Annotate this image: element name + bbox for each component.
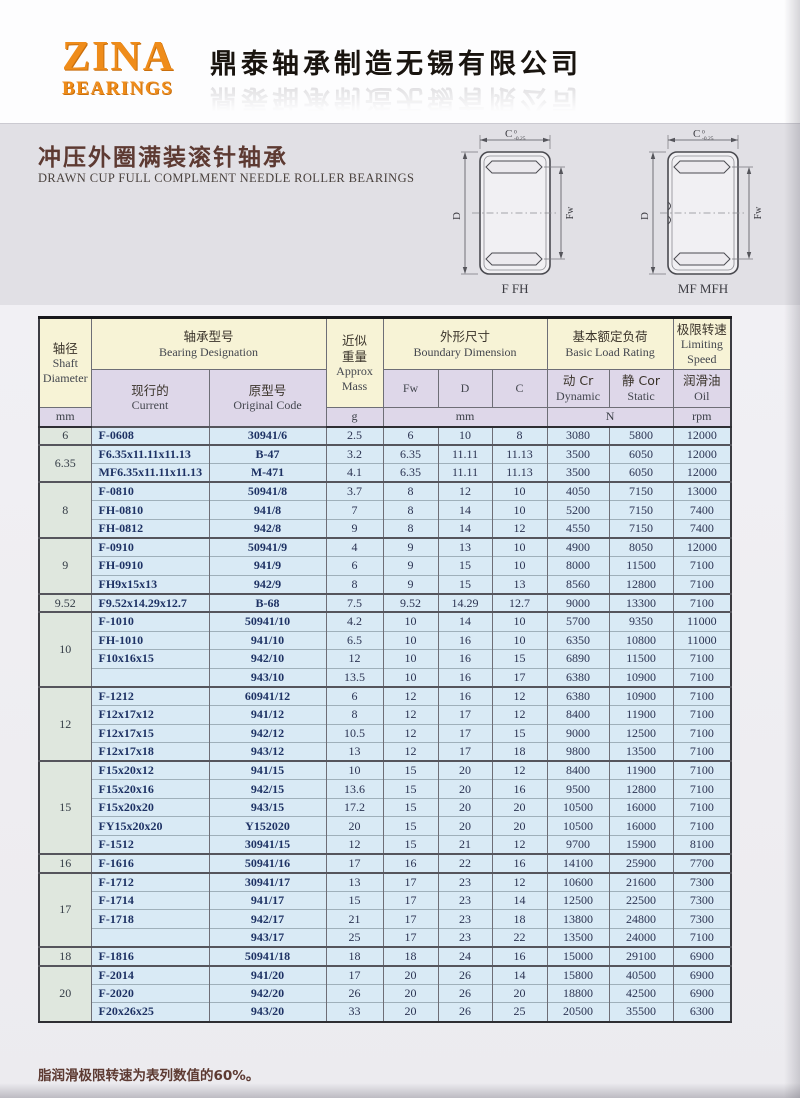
col-header-dynamic: 动 Cr Dynamic xyxy=(547,370,609,408)
table-row: FH-0812942/8981412455071507400 xyxy=(39,519,731,538)
table-row: 15F15x20x12941/15101520128400119007100 xyxy=(39,761,731,780)
table-cell: 15 xyxy=(383,780,438,799)
table-cell: 23 xyxy=(438,929,492,948)
diagram-caption: MF MFH xyxy=(678,281,728,296)
table-cell: 33 xyxy=(326,1003,383,1022)
table-cell: 10.5 xyxy=(326,724,383,743)
shaft-diameter-cell: 6.35 xyxy=(39,445,91,482)
table-cell: 942/9 xyxy=(209,575,326,594)
table-cell: 17 xyxy=(383,910,438,929)
table-cell: 942/20 xyxy=(209,984,326,1003)
table-cell: FY15x20x20 xyxy=(91,817,209,836)
table-cell: 8000 xyxy=(547,557,609,576)
table-cell: 10 xyxy=(383,668,438,687)
table-row: F20x26x25943/203320262520500355006300 xyxy=(39,1003,731,1022)
shaft-diameter-cell: 9 xyxy=(39,538,91,594)
table-cell: 6 xyxy=(326,687,383,706)
shaft-diameter-cell: 12 xyxy=(39,687,91,761)
table-cell: 8 xyxy=(492,427,547,446)
table-wrap: 轴径 Shaft Diameter 轴承型号 Bearing Designati… xyxy=(38,316,732,1023)
dim-label-c-sub: -0.25 xyxy=(702,136,714,142)
dim-label-c: C xyxy=(505,128,512,140)
table-cell: 13800 xyxy=(547,910,609,929)
table-cell: 942/10 xyxy=(209,650,326,669)
table-cell: 11.11 xyxy=(438,464,492,483)
table-cell: 50941/16 xyxy=(209,854,326,873)
table-cell: 7100 xyxy=(673,687,731,706)
table-cell: 7100 xyxy=(673,594,731,613)
logo-zina-text: ZINA xyxy=(62,36,175,78)
dim-label-fw: Fw xyxy=(753,206,764,220)
table-cell: 20 xyxy=(383,966,438,985)
table-cell: 15000 xyxy=(547,947,609,966)
table-cell: F20x26x25 xyxy=(91,1003,209,1022)
header-area: ZINA BEARINGS 鼎泰轴承制造无锡有限公司 鼎泰轴承制造无锡有限公司 xyxy=(0,0,800,123)
table-cell: 12 xyxy=(383,705,438,724)
table-cell: F15x20x12 xyxy=(91,761,209,780)
table-cell: 14 xyxy=(492,966,547,985)
table-cell: 11500 xyxy=(609,557,673,576)
table-cell: 10 xyxy=(438,427,492,446)
table-cell: F-0810 xyxy=(91,482,209,501)
table-cell: 13.5 xyxy=(326,668,383,687)
dim-label-d: D xyxy=(452,212,463,220)
table-cell: 941/20 xyxy=(209,966,326,985)
table-row: F15x20x16942/1513.61520169500128007100 xyxy=(39,780,731,799)
table-cell: 14 xyxy=(438,519,492,538)
table-cell: 18 xyxy=(492,910,547,929)
table-cell: 18800 xyxy=(547,984,609,1003)
table-cell: 10 xyxy=(383,612,438,631)
table-cell: 11900 xyxy=(609,761,673,780)
table-cell: 12 xyxy=(492,705,547,724)
table-cell: 20500 xyxy=(547,1003,609,1022)
table-cell: 50941/9 xyxy=(209,538,326,557)
table-cell: 13 xyxy=(326,743,383,762)
table-row: F12x17x12941/1281217128400119007100 xyxy=(39,705,731,724)
table-cell: 12 xyxy=(492,836,547,855)
table-cell: 14 xyxy=(438,612,492,631)
table-cell: F6.35x11.11x11.13 xyxy=(91,445,209,464)
table-cell: B-68 xyxy=(209,594,326,613)
table-cell: 13300 xyxy=(609,594,673,613)
table-cell: 3500 xyxy=(547,464,609,483)
table-cell: 6380 xyxy=(547,668,609,687)
table-cell: 40500 xyxy=(609,966,673,985)
table-cell: 4050 xyxy=(547,482,609,501)
table-cell: 10 xyxy=(383,650,438,669)
table-cell xyxy=(91,668,209,687)
table-row: F-1714941/171517231412500225007300 xyxy=(39,891,731,910)
table-cell: 10800 xyxy=(609,631,673,650)
col-header-oil: 润滑油 Oil xyxy=(673,370,731,408)
table-cell: 15 xyxy=(438,575,492,594)
table-cell: 26 xyxy=(326,984,383,1003)
dim-label-c-sup: 0 xyxy=(702,130,705,136)
table-cell: 941/10 xyxy=(209,631,326,650)
footer-note: 脂润滑极限转速为表列数值的60%。 xyxy=(38,1064,259,1084)
page-title-zh: 冲压外圈满装滚针轴承 xyxy=(38,138,288,172)
table-cell: 15900 xyxy=(609,836,673,855)
table-cell: 17 xyxy=(326,854,383,873)
catalog-page: ZINA BEARINGS 鼎泰轴承制造无锡有限公司 鼎泰轴承制造无锡有限公司 … xyxy=(0,0,800,1098)
table-row: F15x20x20943/1517.215202010500160007100 xyxy=(39,798,731,817)
table-head: 轴径 Shaft Diameter 轴承型号 Bearing Designati… xyxy=(39,318,731,427)
table-cell: 20 xyxy=(492,817,547,836)
table-cell: 13500 xyxy=(547,929,609,948)
table-cell: 11.13 xyxy=(492,464,547,483)
table-cell: 9 xyxy=(383,538,438,557)
col-header-approx-mass: 近似 重量 Approx Mass xyxy=(326,318,383,408)
table-cell: 12800 xyxy=(609,575,673,594)
table-cell: 17 xyxy=(438,705,492,724)
unit-shaft: mm xyxy=(39,408,91,427)
table-cell: 18 xyxy=(383,947,438,966)
table-cell: 941/12 xyxy=(209,705,326,724)
table-cell: 17 xyxy=(326,966,383,985)
table-row: FH-1010941/106.510161063501080011000 xyxy=(39,631,731,650)
table-cell: 8 xyxy=(383,501,438,520)
table-cell: 10 xyxy=(492,538,547,557)
table-cell: 10 xyxy=(492,612,547,631)
table-cell: 17 xyxy=(492,668,547,687)
table-cell: 8 xyxy=(326,705,383,724)
table-cell: 17 xyxy=(383,891,438,910)
shaft-diameter-cell: 17 xyxy=(39,873,91,947)
table-cell: 7100 xyxy=(673,817,731,836)
bearing-diagram-f-fh: C 0 -0.25 D Fw F FH xyxy=(452,128,610,304)
table-cell: 20 xyxy=(438,817,492,836)
table-cell: 7300 xyxy=(673,891,731,910)
table-cell: 20 xyxy=(438,761,492,780)
shaft-diameter-cell: 8 xyxy=(39,482,91,538)
table-cell: 16 xyxy=(438,668,492,687)
table-cell: 943/12 xyxy=(209,743,326,762)
table-cell: 21 xyxy=(438,836,492,855)
table-cell: 42500 xyxy=(609,984,673,1003)
table-cell: 7100 xyxy=(673,575,731,594)
table-cell: 20 xyxy=(438,780,492,799)
table-cell: 16 xyxy=(438,687,492,706)
table-cell: F12x17x18 xyxy=(91,743,209,762)
table-cell: 3080 xyxy=(547,427,609,446)
table-row: FY15x20x20Y1520202015202010500160007100 xyxy=(39,817,731,836)
company-name-block: 鼎泰轴承制造无锡有限公司 鼎泰轴承制造无锡有限公司 xyxy=(210,42,630,121)
table-cell: 20 xyxy=(492,798,547,817)
table-cell: 4.2 xyxy=(326,612,383,631)
table-cell: 9 xyxy=(326,519,383,538)
needle-roller-top xyxy=(674,161,730,173)
table-cell: 11500 xyxy=(609,650,673,669)
table-cell: F-1616 xyxy=(91,854,209,873)
table-cell: 7.5 xyxy=(326,594,383,613)
table-cell: 13500 xyxy=(609,743,673,762)
table-cell: 13 xyxy=(492,575,547,594)
table-cell: MF6.35x11.11x11.13 xyxy=(91,464,209,483)
table-cell: 9 xyxy=(383,557,438,576)
table-cell: 8400 xyxy=(547,705,609,724)
table-cell: 60941/12 xyxy=(209,687,326,706)
table-cell: 6900 xyxy=(673,947,731,966)
table-cell: 10500 xyxy=(547,798,609,817)
needle-roller-bottom xyxy=(674,253,730,265)
header-row-1: 轴径 Shaft Diameter 轴承型号 Bearing Designati… xyxy=(39,318,731,370)
table-cell: 12 xyxy=(492,519,547,538)
zina-logo: ZINA BEARINGS xyxy=(62,36,175,101)
shaft-diameter-cell: 20 xyxy=(39,966,91,1022)
table-cell: 3.2 xyxy=(326,445,383,464)
shaft-diameter-cell: 6 xyxy=(39,427,91,446)
table-cell: 6890 xyxy=(547,650,609,669)
table-cell: 4.1 xyxy=(326,464,383,483)
table-cell: 20 xyxy=(438,798,492,817)
table-cell: 17 xyxy=(383,873,438,892)
table-cell: FH-0910 xyxy=(91,557,209,576)
table-cell: F9.52x14.29x12.7 xyxy=(91,594,209,613)
table-cell: 16000 xyxy=(609,817,673,836)
table-cell: 5200 xyxy=(547,501,609,520)
col-header-limiting-speed: 极限转速 Limiting Speed xyxy=(673,318,731,370)
table-cell: 16 xyxy=(438,650,492,669)
table-cell: 12 xyxy=(383,743,438,762)
table-cell: 11.11 xyxy=(438,445,492,464)
table-cell: 8100 xyxy=(673,836,731,855)
col-header-basic-load-rating: 基本额定负荷 Basic Load Rating xyxy=(547,318,673,370)
table-cell: F-0910 xyxy=(91,538,209,557)
col-header-current: 现行的 Current xyxy=(91,370,209,427)
table-row: 10F-101050941/104.21014105700935011000 xyxy=(39,612,731,631)
table-row: FH-0910941/96915108000115007100 xyxy=(39,557,731,576)
table-cell: 10 xyxy=(492,482,547,501)
table-cell: 14100 xyxy=(547,854,609,873)
table-cell: 15 xyxy=(326,891,383,910)
shaft-diameter-cell: 16 xyxy=(39,854,91,873)
table-row: 18F-181650941/181818241615000291006900 xyxy=(39,947,731,966)
table-cell: B-47 xyxy=(209,445,326,464)
dim-label-c: C xyxy=(693,128,700,140)
table-cell: 4550 xyxy=(547,519,609,538)
page-title-en: DRAWN CUP FULL COMPLMENT NEEDLE ROLLER B… xyxy=(38,171,414,186)
table-cell: 16000 xyxy=(609,798,673,817)
table-body: 6F-060830941/62.5610830805800120006.35F6… xyxy=(39,427,731,1022)
table-cell: 7100 xyxy=(673,668,731,687)
table-cell: 6050 xyxy=(609,464,673,483)
table-cell: 7300 xyxy=(673,910,731,929)
table-row: F10x16x15942/10121016156890115007100 xyxy=(39,650,731,669)
table-row: 6F-060830941/62.561083080580012000 xyxy=(39,427,731,446)
table-cell: 21600 xyxy=(609,873,673,892)
table-cell: 8 xyxy=(326,575,383,594)
table-cell: 23 xyxy=(438,873,492,892)
table-cell: FH-0810 xyxy=(91,501,209,520)
table-row: MF6.35x11.11x11.13M-4714.16.3511.1111.13… xyxy=(39,464,731,483)
table-cell: 941/15 xyxy=(209,761,326,780)
table-cell: 9800 xyxy=(547,743,609,762)
table-cell: 13 xyxy=(326,873,383,892)
table-cell: 4900 xyxy=(547,538,609,557)
table-cell: 18 xyxy=(326,947,383,966)
table-cell: 10 xyxy=(492,501,547,520)
table-cell: 11000 xyxy=(673,612,731,631)
header-row-2: 现行的 Current 原型号 Original Code Fw D C xyxy=(39,370,731,408)
table-cell: 50941/8 xyxy=(209,482,326,501)
table-cell: 12 xyxy=(492,873,547,892)
table-cell: 7100 xyxy=(673,650,731,669)
table-row: 6.35F6.35x11.11x11.13B-473.26.3511.1111.… xyxy=(39,445,731,464)
table-cell: 10 xyxy=(326,761,383,780)
table-cell: 9.52 xyxy=(383,594,438,613)
table-cell: 13 xyxy=(438,538,492,557)
table-cell: 16 xyxy=(492,947,547,966)
table-cell: F15x20x20 xyxy=(91,798,209,817)
table-cell: 6900 xyxy=(673,966,731,985)
table-cell: 9000 xyxy=(547,724,609,743)
table-cell: 13.6 xyxy=(326,780,383,799)
table-cell: 16 xyxy=(492,854,547,873)
table-cell: 14 xyxy=(438,501,492,520)
shaft-diameter-cell: 15 xyxy=(39,761,91,854)
table-cell: 2.5 xyxy=(326,427,383,446)
table-cell: 15800 xyxy=(547,966,609,985)
table-cell: 6050 xyxy=(609,445,673,464)
table-cell: 7100 xyxy=(673,724,731,743)
table-cell: 8 xyxy=(383,482,438,501)
table-cell: 3500 xyxy=(547,445,609,464)
table-cell: 10900 xyxy=(609,668,673,687)
table-cell: 17 xyxy=(383,929,438,948)
table-cell: 14.29 xyxy=(438,594,492,613)
table-cell: 12000 xyxy=(673,464,731,483)
table-cell: 942/8 xyxy=(209,519,326,538)
table-cell: 12 xyxy=(383,724,438,743)
dim-label-d: D xyxy=(640,212,651,220)
table-cell: M-471 xyxy=(209,464,326,483)
table-cell: 10 xyxy=(492,557,547,576)
col-header-bearing-designation: 轴承型号 Bearing Designation xyxy=(91,318,326,370)
table-cell: 7150 xyxy=(609,501,673,520)
table-cell: 12 xyxy=(326,836,383,855)
shaft-diameter-cell: 18 xyxy=(39,947,91,966)
table-cell: 22 xyxy=(492,929,547,948)
table-cell: 12 xyxy=(326,650,383,669)
unit-load: N xyxy=(547,408,673,427)
table-row: 16F-161650941/161716221614100259007700 xyxy=(39,854,731,873)
company-name: 鼎泰轴承制造无锡有限公司 xyxy=(210,42,630,81)
table-row: F12x17x18943/12131217189800135007100 xyxy=(39,743,731,762)
table-cell: 9350 xyxy=(609,612,673,631)
table-cell: 7100 xyxy=(673,557,731,576)
table-row: 9F-091050941/94913104900805012000 xyxy=(39,538,731,557)
table-cell: 16 xyxy=(492,780,547,799)
col-header-static: 静 Cor Static xyxy=(609,370,673,408)
table-cell: 5800 xyxy=(609,427,673,446)
table-cell: 10 xyxy=(383,631,438,650)
col-header-original-code: 原型号 Original Code xyxy=(209,370,326,427)
table-cell: 11.13 xyxy=(492,445,547,464)
table-cell: 23 xyxy=(438,910,492,929)
table-row: FH9x15x13942/98915138560128007100 xyxy=(39,575,731,594)
col-header-shaft-diameter: 轴径 Shaft Diameter xyxy=(39,318,91,408)
col-header-boundary-dimension: 外形尺寸 Boundary Dimension xyxy=(383,318,547,370)
table-cell: 15 xyxy=(383,817,438,836)
table-cell: 9000 xyxy=(547,594,609,613)
table-cell: 12.7 xyxy=(492,594,547,613)
table-cell: 12500 xyxy=(609,724,673,743)
table-cell: 15 xyxy=(492,650,547,669)
table-cell: 4 xyxy=(326,538,383,557)
table-cell: 943/20 xyxy=(209,1003,326,1022)
col-header-d: D xyxy=(438,370,492,408)
table-cell: F-0608 xyxy=(91,427,209,446)
logo-bearings-text: BEARINGS xyxy=(62,78,175,101)
needle-roller-top xyxy=(486,161,542,173)
company-name-reflection: 鼎泰轴承制造无锡有限公司 xyxy=(210,82,630,121)
table-cell: 7100 xyxy=(673,798,731,817)
table-cell: 7100 xyxy=(673,929,731,948)
table-cell: F12x17x12 xyxy=(91,705,209,724)
table-cell: 6380 xyxy=(547,687,609,706)
table-cell: 942/15 xyxy=(209,780,326,799)
table-cell: Y152020 xyxy=(209,817,326,836)
table-cell: 22 xyxy=(438,854,492,873)
table-cell: 10600 xyxy=(547,873,609,892)
table-cell: 22500 xyxy=(609,891,673,910)
table-cell: 6350 xyxy=(547,631,609,650)
table-cell: 14 xyxy=(492,891,547,910)
table-cell: F-2020 xyxy=(91,984,209,1003)
bearings-table: 轴径 Shaft Diameter 轴承型号 Bearing Designati… xyxy=(38,316,732,1023)
table-cell: 11900 xyxy=(609,705,673,724)
table-cell: 20 xyxy=(492,984,547,1003)
table-cell: 25900 xyxy=(609,854,673,873)
table-cell: 50941/10 xyxy=(209,612,326,631)
shaft-diameter-cell: 10 xyxy=(39,612,91,686)
table-cell: 10900 xyxy=(609,687,673,706)
table-cell: 5700 xyxy=(547,612,609,631)
table-cell: 12500 xyxy=(547,891,609,910)
table-cell: F-1816 xyxy=(91,947,209,966)
needle-roller-bottom xyxy=(486,253,542,265)
table-cell: F-1714 xyxy=(91,891,209,910)
table-cell: 17.2 xyxy=(326,798,383,817)
table-cell: 12000 xyxy=(673,445,731,464)
table-cell: FH9x15x13 xyxy=(91,575,209,594)
table-cell: 943/10 xyxy=(209,668,326,687)
table-cell: 7150 xyxy=(609,482,673,501)
table-cell: 6300 xyxy=(673,1003,731,1022)
table-cell: 24800 xyxy=(609,910,673,929)
table-row: 20F-2014941/201720261415800405006900 xyxy=(39,966,731,985)
table-cell: 16 xyxy=(438,631,492,650)
table-cell: 20 xyxy=(326,817,383,836)
table-cell: 12 xyxy=(492,761,547,780)
table-cell: 18 xyxy=(492,743,547,762)
table-row: F-2020942/202620262018800425006900 xyxy=(39,984,731,1003)
table-cell: 25 xyxy=(492,1003,547,1022)
table-cell: 9700 xyxy=(547,836,609,855)
table-row: 943/172517232213500240007100 xyxy=(39,929,731,948)
table-cell: 20 xyxy=(383,984,438,1003)
table-row: F-1718942/172117231813800248007300 xyxy=(39,910,731,929)
table-cell: 23 xyxy=(438,891,492,910)
table-row: F12x17x15942/1210.51217159000125007100 xyxy=(39,724,731,743)
table-cell: 15 xyxy=(383,836,438,855)
table-cell: 7100 xyxy=(673,743,731,762)
table-cell: 15 xyxy=(492,724,547,743)
table-cell: 6.35 xyxy=(383,445,438,464)
table-cell: 7300 xyxy=(673,873,731,892)
dim-label-fw: Fw xyxy=(565,206,576,220)
